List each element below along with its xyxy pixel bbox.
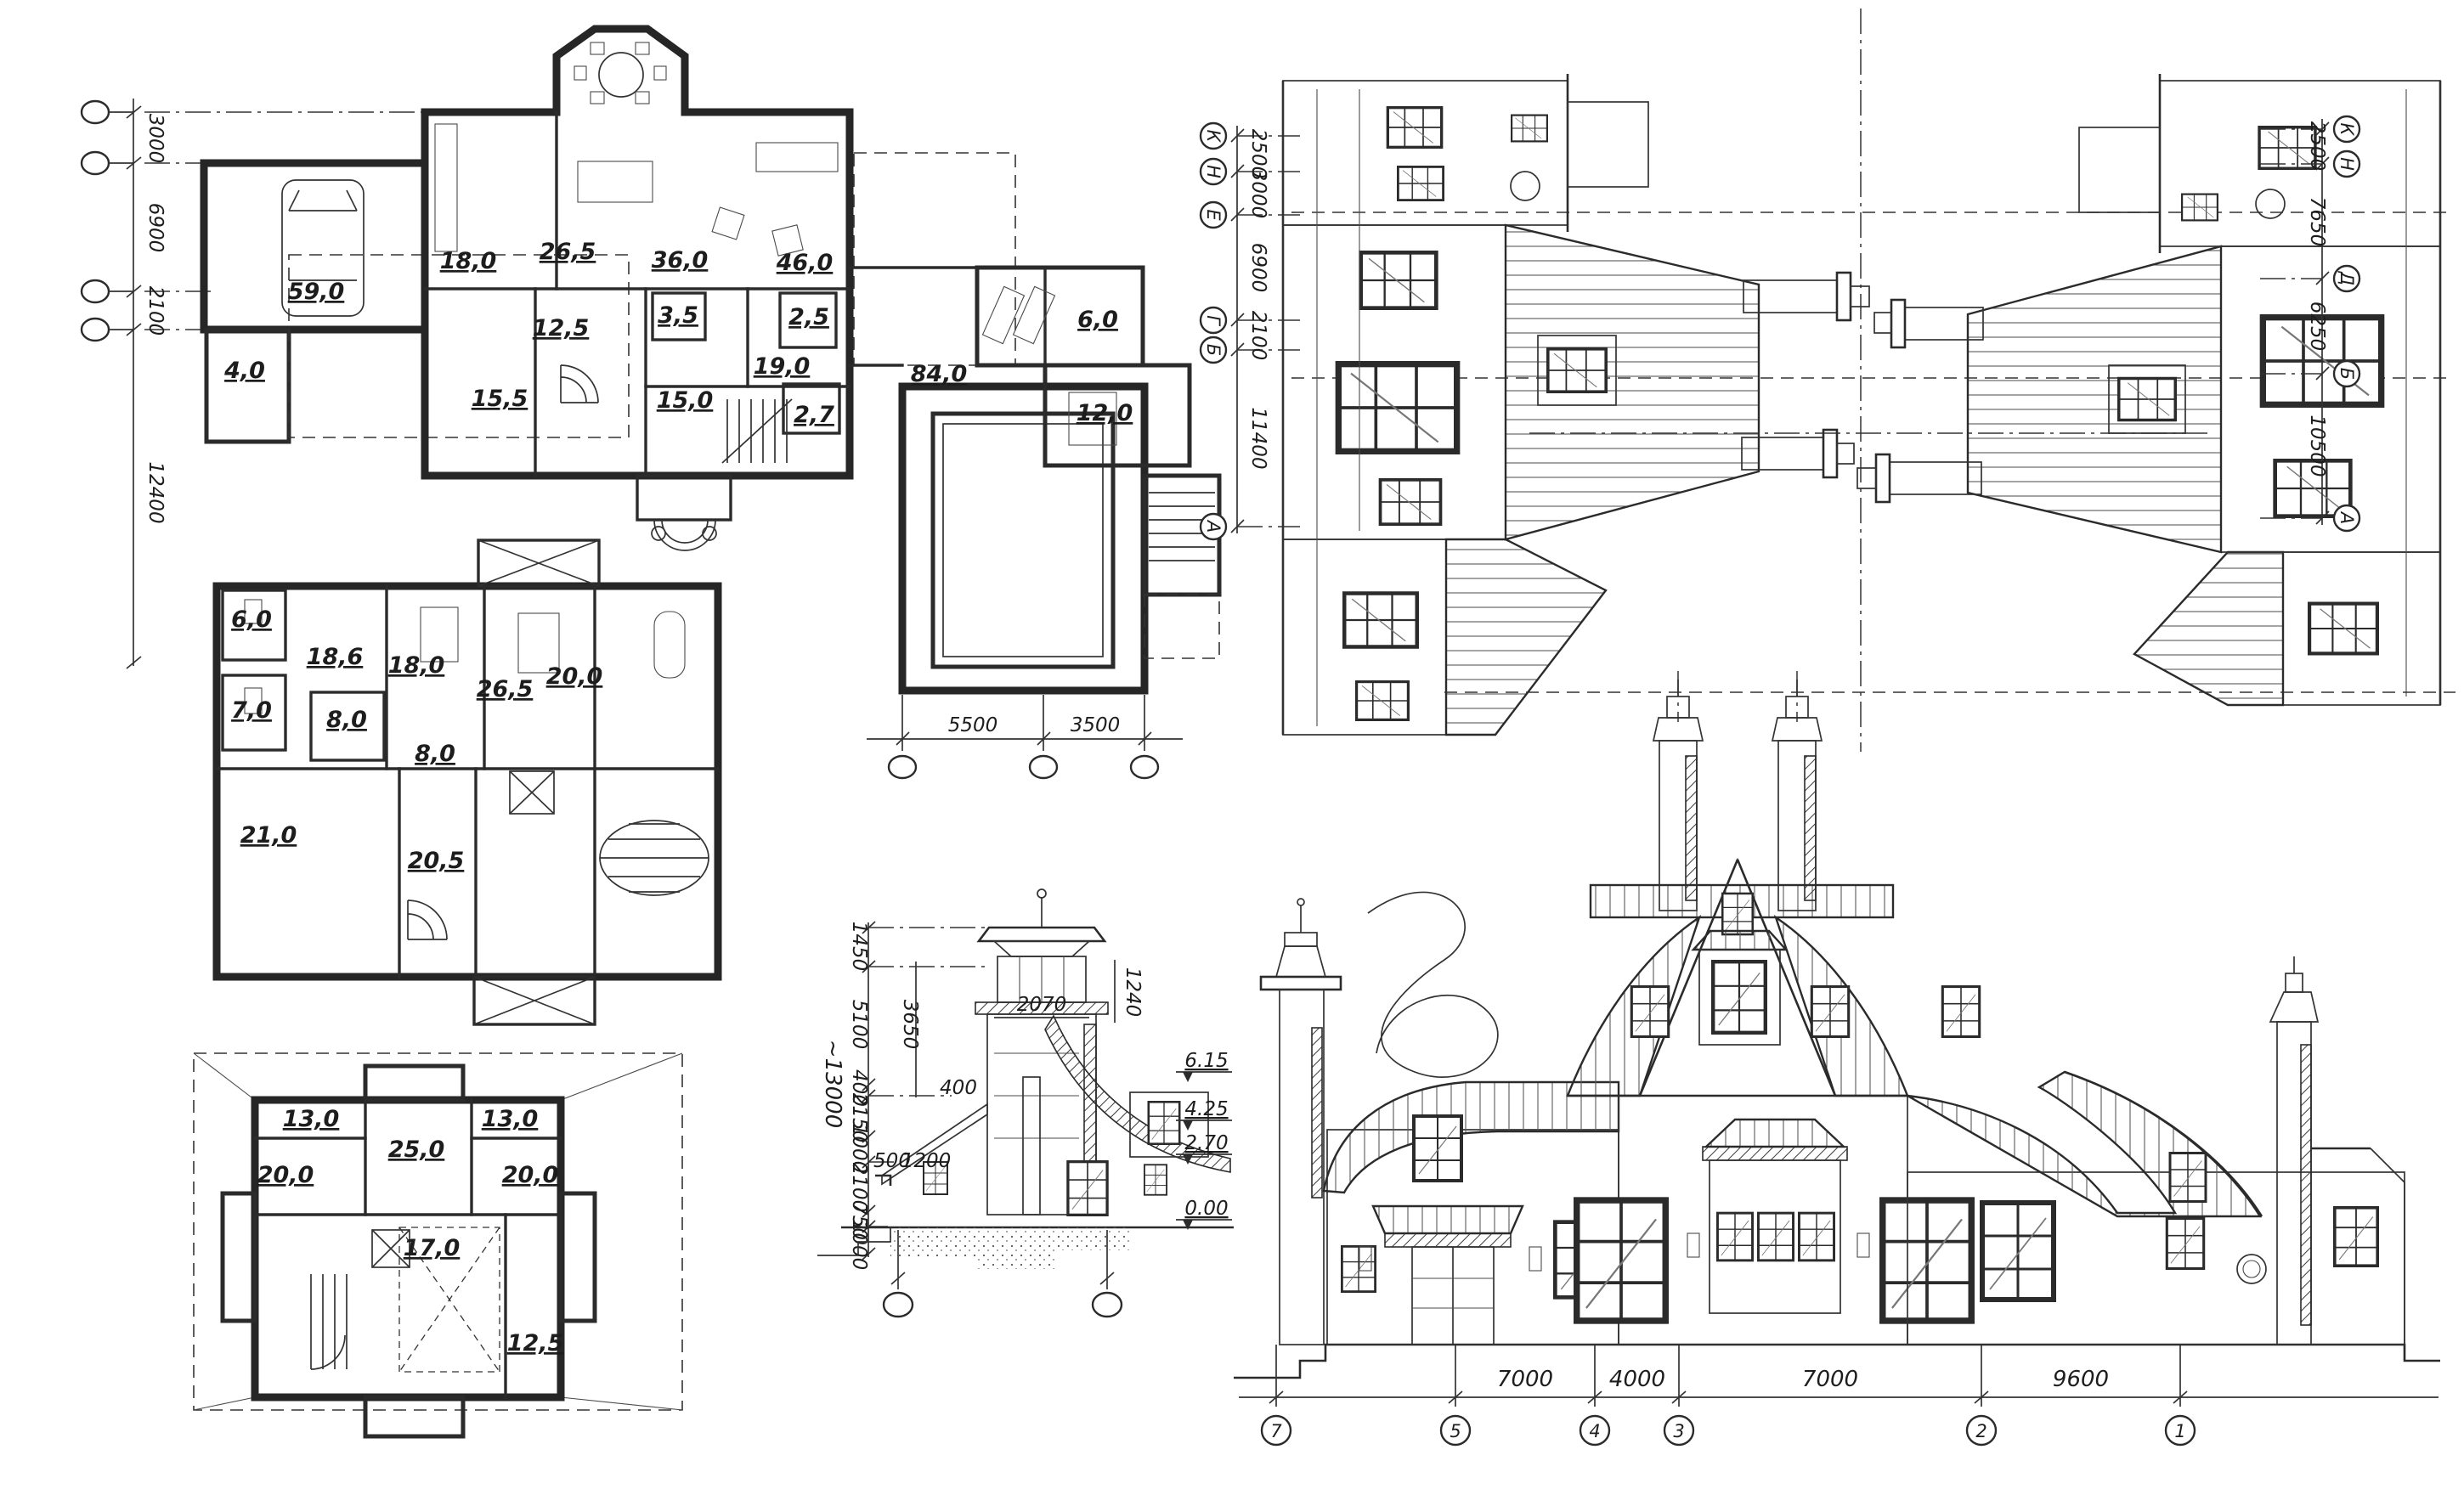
pool-wing [850,268,1219,691]
left-tower [1261,899,1341,1345]
front-dim: 9600 [2053,1367,2109,1392]
axis-dim: 6250 [2306,302,2328,352]
room-area-label: 12,0 [1077,400,1133,426]
ground-floor-partitions [425,112,850,476]
axis-dim: 10500 [2306,415,2328,477]
axis-number: 7 [1270,1421,1282,1441]
architectural-sketch: 3000 6900 2100 12400 [0,0,2464,1489]
room-area-label: 25,0 [388,1136,445,1163]
attic-stair [311,1274,347,1369]
side-elevation-left [1283,74,1869,735]
ground-floor-plan: 3000 6900 2100 12400 [82,29,1219,778]
section-dim: 2070 [1017,994,1067,1016]
room-area-label: 2,5 [788,304,829,330]
portico [637,476,731,550]
room-area-label: 36,0 [652,247,709,274]
level-label: 0.00 [1184,1198,1228,1220]
bottom-dim: 5500 [948,714,998,736]
front-dim: 7000 [1497,1367,1553,1392]
porch-walls [206,330,289,442]
room-area-label: 18,0 [440,248,497,274]
tower-section: 1450 5100 400 2150 1000 2100 750 1000 ~1… [817,889,1234,1317]
room-area-label: 20,0 [546,663,603,690]
attic-floor-plan: 13,0 13,0 25,0 20,0 20,0 17,0 12,5 [194,1053,682,1436]
attic-room-labels: 13,0 13,0 25,0 20,0 20,0 17,0 12,5 [257,1106,564,1356]
axis-dim: 2100 [1247,311,1269,361]
right-wing [1907,956,2405,1345]
room-area-label: 13,0 [283,1106,340,1132]
section-dim: 3650 [899,1000,921,1050]
axis-letter: К [1203,130,1224,144]
axis-dim: 2500 [2306,121,2328,172]
room-area-label: 13,0 [482,1106,539,1132]
room-area-label: 59,0 [288,279,345,305]
roof-hip-lines [194,1053,682,1410]
axis-letter: Б [2337,368,2357,380]
elevator-shaft [510,771,554,814]
room-area-label: 15,5 [472,386,528,412]
room-area-label: 18,0 [388,652,445,679]
axis-letter: К [2337,123,2357,137]
drawing-sheet: 3000 6900 2100 12400 [0,0,2464,1489]
central-block [1568,680,1971,1345]
axis-dim: 2100 [144,286,167,336]
section-house [817,1016,1234,1269]
front-dim: 4000 [1609,1367,1665,1392]
section-dim: 1200 [901,1150,952,1172]
axis-dim: 6900 [144,203,167,253]
spiral-stair [561,365,598,403]
chairs [574,42,666,104]
axis-letter: Д [2337,271,2357,285]
tower-inner-dims: 2070 1240 3650 400 500 1200 [873,960,1144,1172]
axis-number: 1 [2174,1421,2185,1441]
axis-number: 2 [1975,1421,1986,1441]
second-floor-partitions [217,586,718,977]
axis-letter: Н [1203,165,1224,178]
level-label: 2.70 [1184,1132,1228,1154]
axis-dim: 7650 [2306,197,2328,247]
pool-dim-chain: 5500 3500 [867,695,1183,778]
room-area-label: 84,0 [911,361,968,387]
axis-dim: 11400 [1247,407,1269,469]
axis-letter: Е [1203,209,1224,221]
axis-number: 5 [1450,1421,1461,1441]
axis-dim: 3000 [1247,169,1269,219]
room-area-label: 8,0 [326,707,367,733]
section-overall-dim: ~13000 [820,1040,845,1129]
right-chimney [2270,956,2318,1345]
front-dim: 7000 [1802,1367,1858,1392]
front-axis-bubbles: 7 5 4 3 2 1 [1262,1416,2195,1445]
room-area-label: 18,6 [307,644,364,670]
room-area-label: 15,0 [657,387,714,414]
axis-dim: 6900 [1247,243,1269,293]
room-area-label: 4,0 [223,358,265,384]
room-area-label: 26,5 [540,239,596,265]
room-area-label: 2,7 [794,402,834,428]
room-area-label: 17,0 [404,1235,461,1261]
front-elevation-axis-chain: 7 5 4 3 2 1 7000 4000 7000 9600 [1239,1345,2439,1445]
balcony-bottom [474,977,595,1024]
round-table [599,53,643,97]
axis-dim: 12400 [144,461,167,523]
terrace-dashed [854,153,1015,365]
room-area-label: 7,0 [231,697,272,724]
chimney [1743,273,1869,320]
balcony-top [478,540,599,586]
room-area-label: 12,5 [507,1330,564,1356]
room-area-label: 6,0 [1077,307,1118,333]
room-area-label: 3,5 [658,302,698,329]
room-area-label: 19,0 [754,353,811,380]
section-dim: 5100 [848,1000,870,1050]
ground-floor-furniture [435,124,838,256]
section-dim: 1240 [1122,967,1144,1018]
side-elevations: К Н Е Г Б А 2500 3000 6900 2100 11400 [1201,8,2447,752]
section-dim: 400 [940,1077,977,1099]
axis-letter: Б [1203,344,1224,356]
axis-dim: 3000 [144,114,167,164]
main-stair [722,399,792,463]
room-area-label: 12,5 [533,315,590,341]
axis-letter: Н [2337,157,2357,171]
spiral-stair-2f [408,900,447,939]
level-label: 4.25 [1184,1098,1228,1120]
level-marks: 6.15 4.25 2.70 0.00 [1176,1050,1232,1230]
chimney [1857,454,1981,502]
room-area-label: 21,0 [240,822,297,849]
front-elevation: 7 5 4 3 2 1 7000 4000 7000 9600 [1234,671,2456,1445]
axis-letter: А [1203,519,1224,533]
room-area-label: 8,0 [415,741,455,767]
section-dim: 1450 [848,922,870,972]
axis-number: 3 [1673,1421,1684,1441]
bottom-dim: 3500 [1071,714,1121,736]
level-label: 6.15 [1184,1050,1228,1072]
room-area-label: 20,0 [257,1162,314,1188]
room-area-label: 46,0 [776,250,834,276]
oval-stair [600,821,709,895]
second-floor-plan: 6,0 7,0 18,6 18,0 26,5 20,0 8,0 8,0 21,0… [217,540,718,1024]
room-area-label: 26,5 [477,676,534,702]
room-area-label: 20,0 [502,1162,559,1188]
room-area-label: 20,5 [408,848,465,874]
axis-number: 4 [1589,1421,1600,1441]
room-area-label: 6,0 [231,606,272,633]
axis-letter: А [2337,510,2357,524]
sketch-swirl [1368,892,1498,1077]
